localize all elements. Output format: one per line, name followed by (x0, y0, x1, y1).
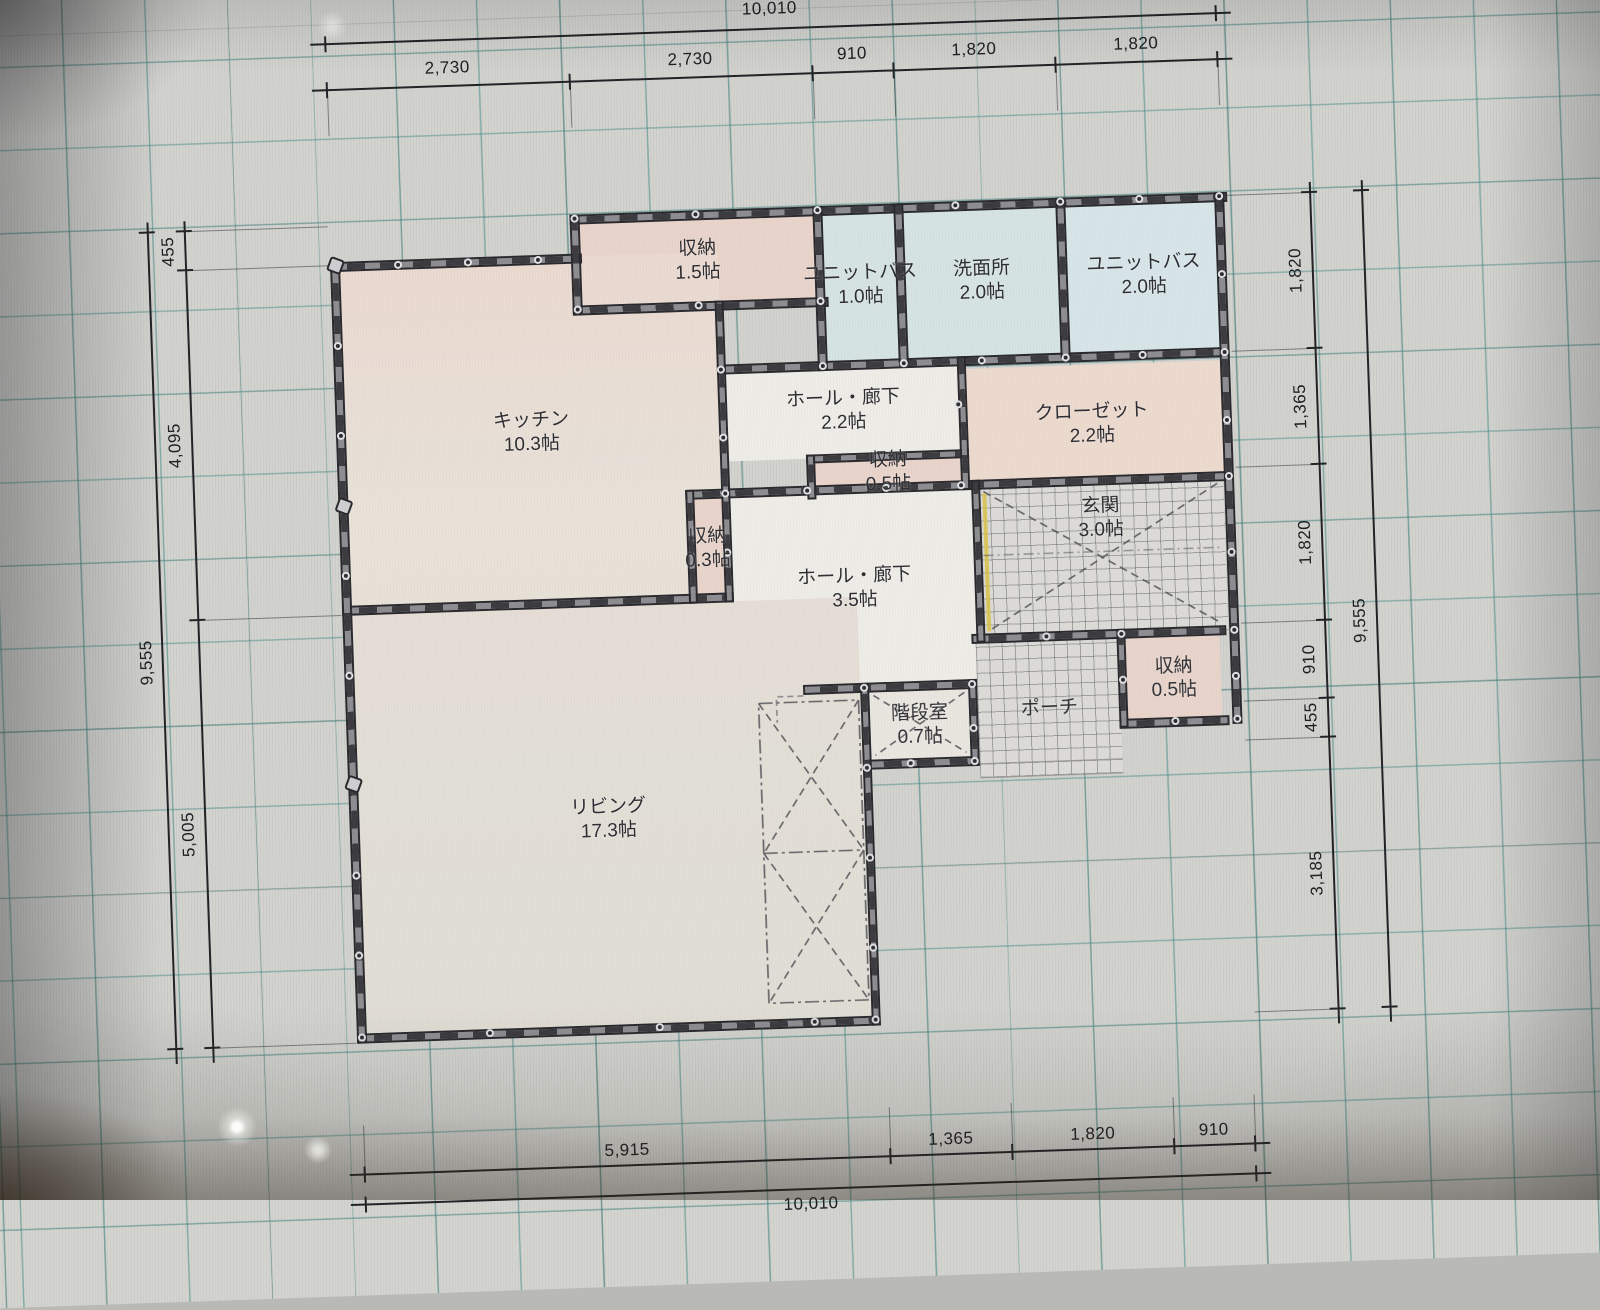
room-washroom: 洗面所2.0帖 (898, 201, 1065, 363)
room-label: 階段室0.7帖 (891, 701, 950, 752)
room-closet: クローゼット2.2帖 (957, 360, 1227, 489)
dim-bottom-total: 10,010 (751, 1192, 872, 1216)
dim-top-total: 10,010 (709, 0, 830, 21)
dim-extension-line (220, 1043, 356, 1049)
room-label: クローゼット2.2帖 (1034, 398, 1150, 451)
dim-left-3: 5,005 (177, 774, 201, 895)
dim-top-2: 2,730 (630, 47, 751, 71)
room-unit-bath-1-0: ユニットバス1.0帖 (817, 206, 903, 365)
dim-extension-line (1056, 71, 1058, 111)
dim-right-total: 9,555 (1348, 560, 1372, 681)
room-entrance: 玄関3.0帖 (976, 476, 1228, 639)
dim-extension-line (1218, 65, 1220, 105)
dim-line-left-inner (183, 221, 214, 1063)
room-label: リビング17.3帖 (570, 794, 648, 845)
room-label: 収納0.5帖 (1150, 653, 1197, 703)
dim-bottom-1: 5,915 (567, 1138, 688, 1162)
dim-right-3: 1,820 (1293, 482, 1317, 603)
dim-extension-line (894, 76, 896, 116)
dim-bottom-2: 1,365 (891, 1127, 1012, 1151)
dim-extension-line (205, 615, 341, 621)
dim-extension-line (1226, 192, 1301, 196)
room-label: キッチン10.3帖 (493, 408, 571, 459)
room-label: 洗面所2.0帖 (953, 256, 1012, 307)
dim-right-6: 3,185 (1305, 813, 1329, 934)
dim-left-2: 4,095 (163, 385, 187, 506)
room-label: 収納1.5帖 (674, 236, 721, 286)
dim-left-1: 455 (156, 192, 180, 313)
room-label: 収納0.5帖 (865, 447, 912, 497)
dim-bottom-4: 910 (1153, 1118, 1274, 1142)
room-label: 玄関3.0帖 (1077, 494, 1124, 544)
room-unit-bath-2-0: ユニットバス2.0帖 (1060, 195, 1227, 357)
room-hall-upper: ホール・廊下2.2帖 (722, 360, 965, 461)
room-storage-0-5-right: 収納0.5帖 (1126, 634, 1223, 722)
dim-bottom-3: 1,820 (1033, 1122, 1154, 1146)
dim-extension-line (193, 265, 329, 271)
room-label: 収納0.3帖 (684, 524, 731, 574)
dim-extension-line (570, 88, 572, 128)
room-label: ユニットバス1.0帖 (803, 259, 919, 312)
dim-left-total: 9,555 (135, 603, 159, 724)
room-stairs: 階段室0.7帖 (869, 688, 970, 763)
dim-right-1: 1,820 (1284, 210, 1308, 331)
cad-screen: 収納1.5帖 ユニットバス1.0帖 洗面所2.0帖 ユニットバス2.0帖 キッチ… (0, 0, 1600, 1310)
room-living: リビング17.3帖 (345, 597, 872, 1043)
floor-plan-canvas[interactable]: 収納1.5帖 ユニットバス1.0帖 洗面所2.0帖 ユニットバス2.0帖 キッチ… (332, 195, 1251, 1043)
dim-right-2: 1,365 (1288, 346, 1312, 467)
room-label: ポーチ (1021, 695, 1079, 721)
dim-top-4: 1,820 (914, 38, 1035, 62)
dim-extension-line (1255, 1009, 1330, 1013)
dim-extension-line (813, 79, 815, 119)
room-label: ホール・廊下3.5帖 (797, 563, 913, 616)
dim-top-1: 2,730 (387, 56, 508, 80)
dim-extension-line (1011, 1103, 1014, 1148)
dim-top-3: 910 (792, 42, 913, 66)
room-label: ユニットバス2.0帖 (1086, 250, 1202, 303)
dim-line-bottom-inner (350, 1142, 1271, 1176)
room-porch: ポーチ (976, 638, 1124, 778)
room-label: ホール・廊下2.2帖 (786, 385, 902, 438)
dim-extension-line (192, 226, 328, 232)
dim-right-5: 455 (1299, 657, 1323, 778)
dim-top-5: 1,820 (1075, 32, 1196, 56)
dim-extension-line (327, 96, 329, 136)
dim-extension-line (363, 1126, 366, 1171)
